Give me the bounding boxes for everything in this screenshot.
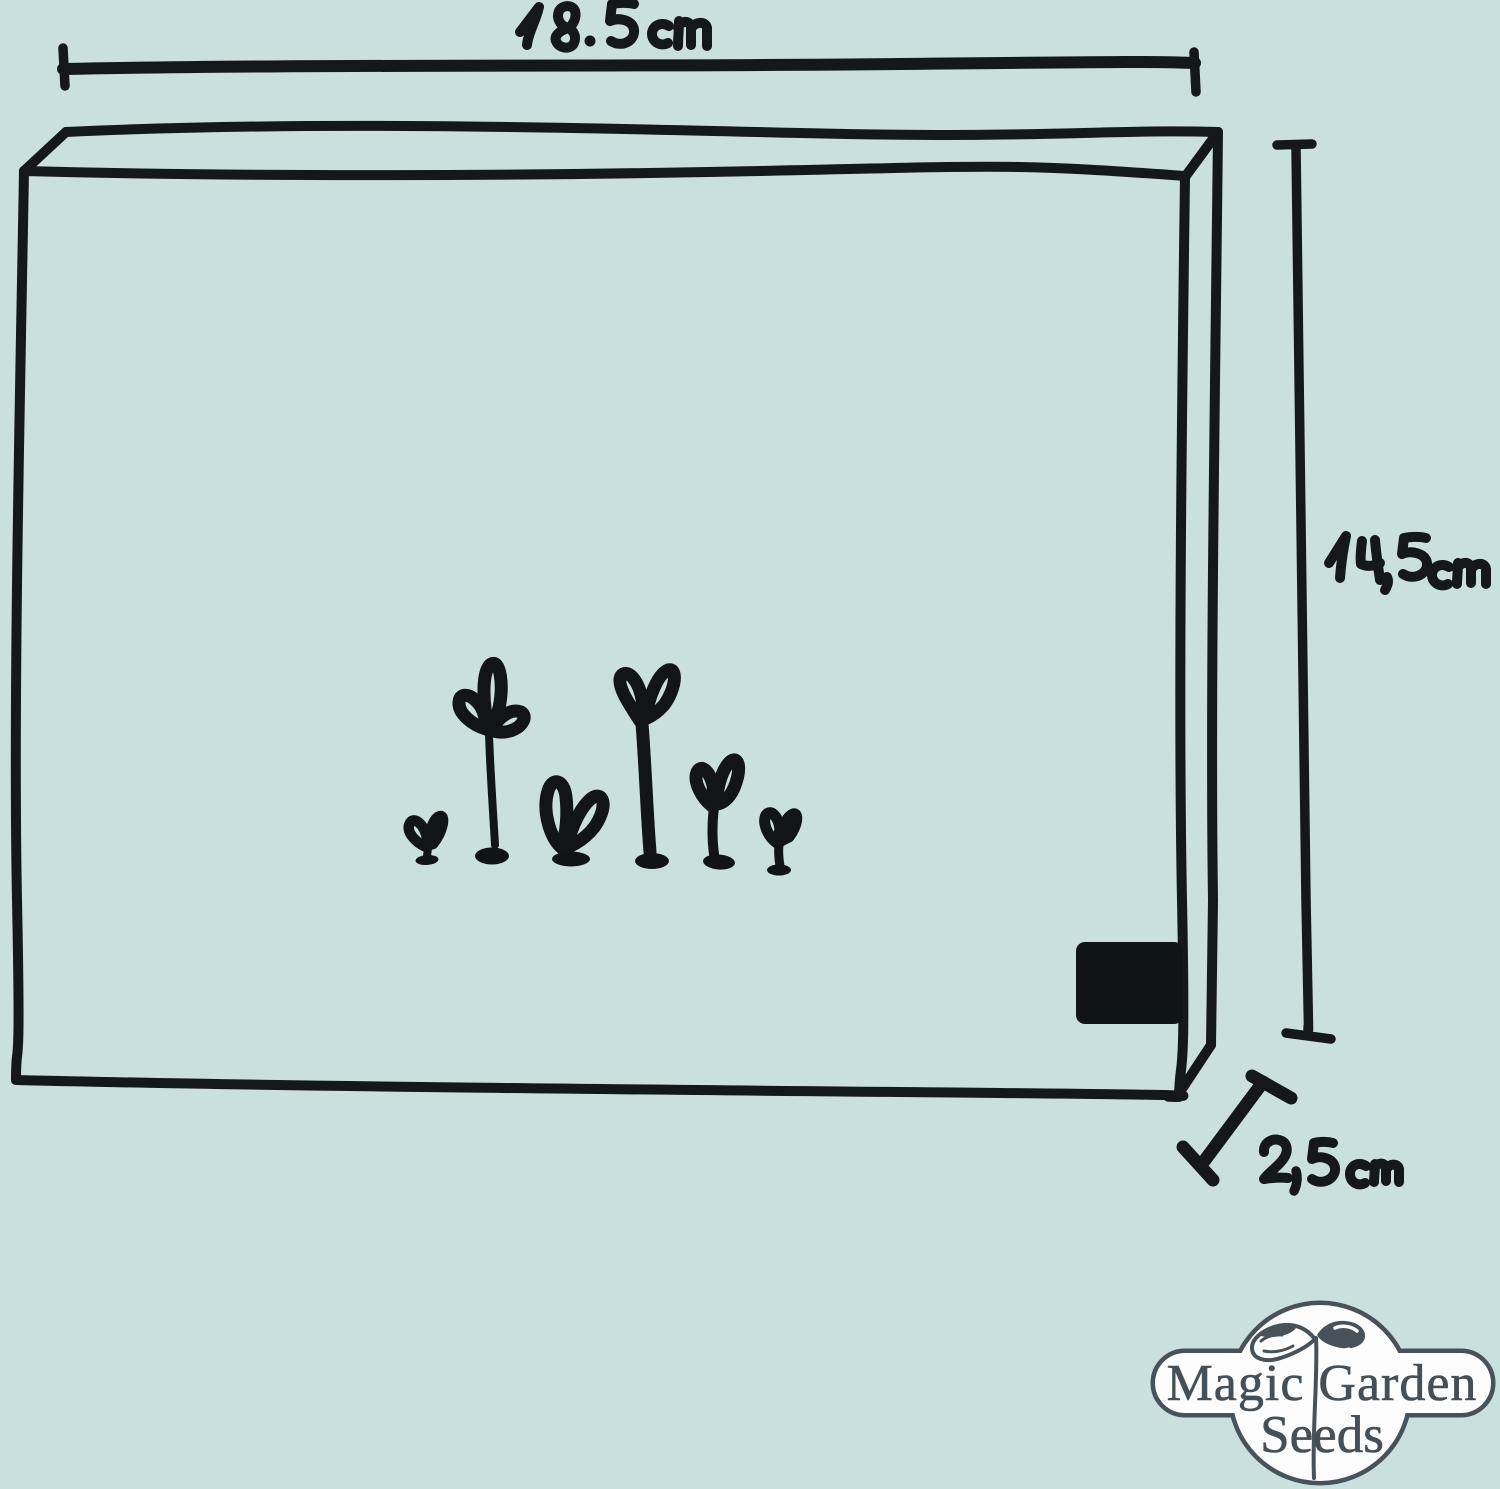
svg-text:Seeds: Seeds xyxy=(1260,1406,1384,1464)
svg-text:Magic Garden: Magic Garden xyxy=(1167,1355,1478,1412)
